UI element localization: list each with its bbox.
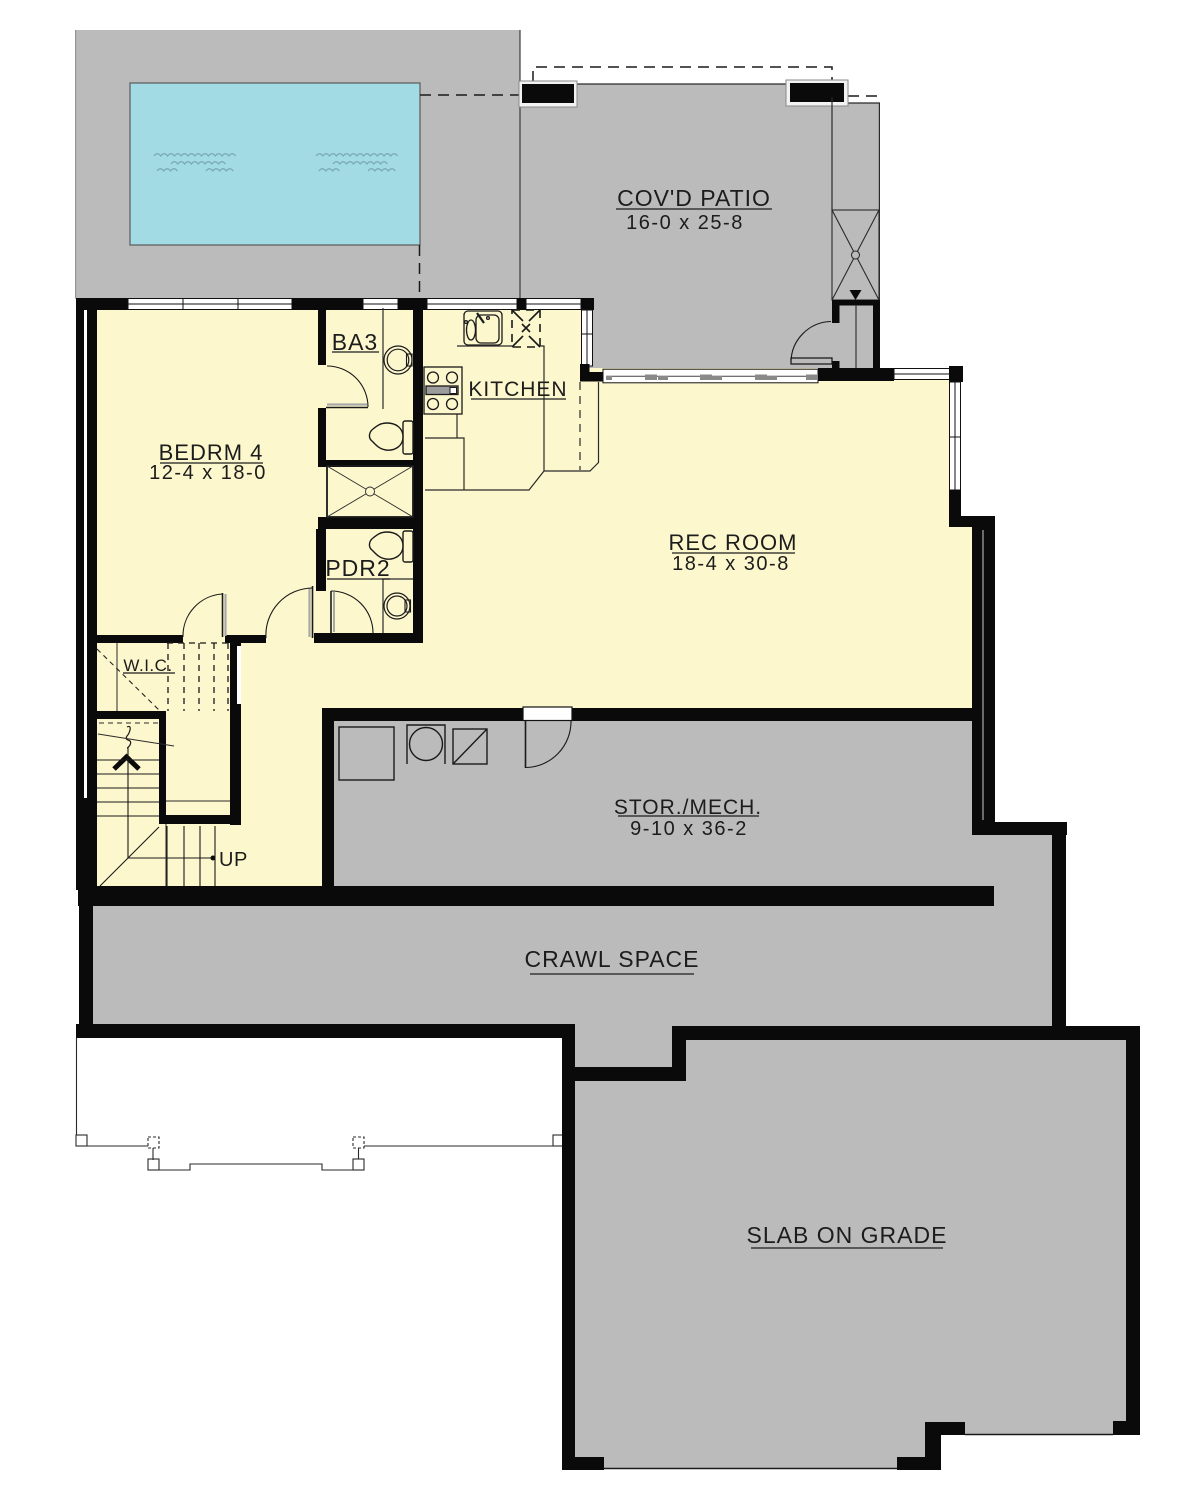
svg-text:CRAWL SPACE: CRAWL SPACE: [524, 946, 699, 972]
svg-text:12-4 x 18-0: 12-4 x 18-0: [149, 462, 267, 484]
svg-text:KITCHEN: KITCHEN: [468, 378, 567, 401]
svg-text:18-4 x 30-8: 18-4 x 30-8: [672, 553, 790, 575]
svg-text:16-0 x 25-8: 16-0 x 25-8: [626, 212, 744, 234]
svg-text:PDR2: PDR2: [325, 555, 390, 581]
svg-text:SLAB ON GRADE: SLAB ON GRADE: [747, 1222, 948, 1248]
svg-text:REC ROOM: REC ROOM: [669, 530, 798, 555]
svg-text:9-10 x 36-2: 9-10 x 36-2: [630, 818, 748, 840]
svg-text:W.I.C.: W.I.C.: [123, 656, 172, 675]
svg-text:BA3: BA3: [332, 329, 378, 355]
svg-text:UP: UP: [219, 849, 248, 871]
svg-text:COV'D PATIO: COV'D PATIO: [617, 185, 771, 211]
